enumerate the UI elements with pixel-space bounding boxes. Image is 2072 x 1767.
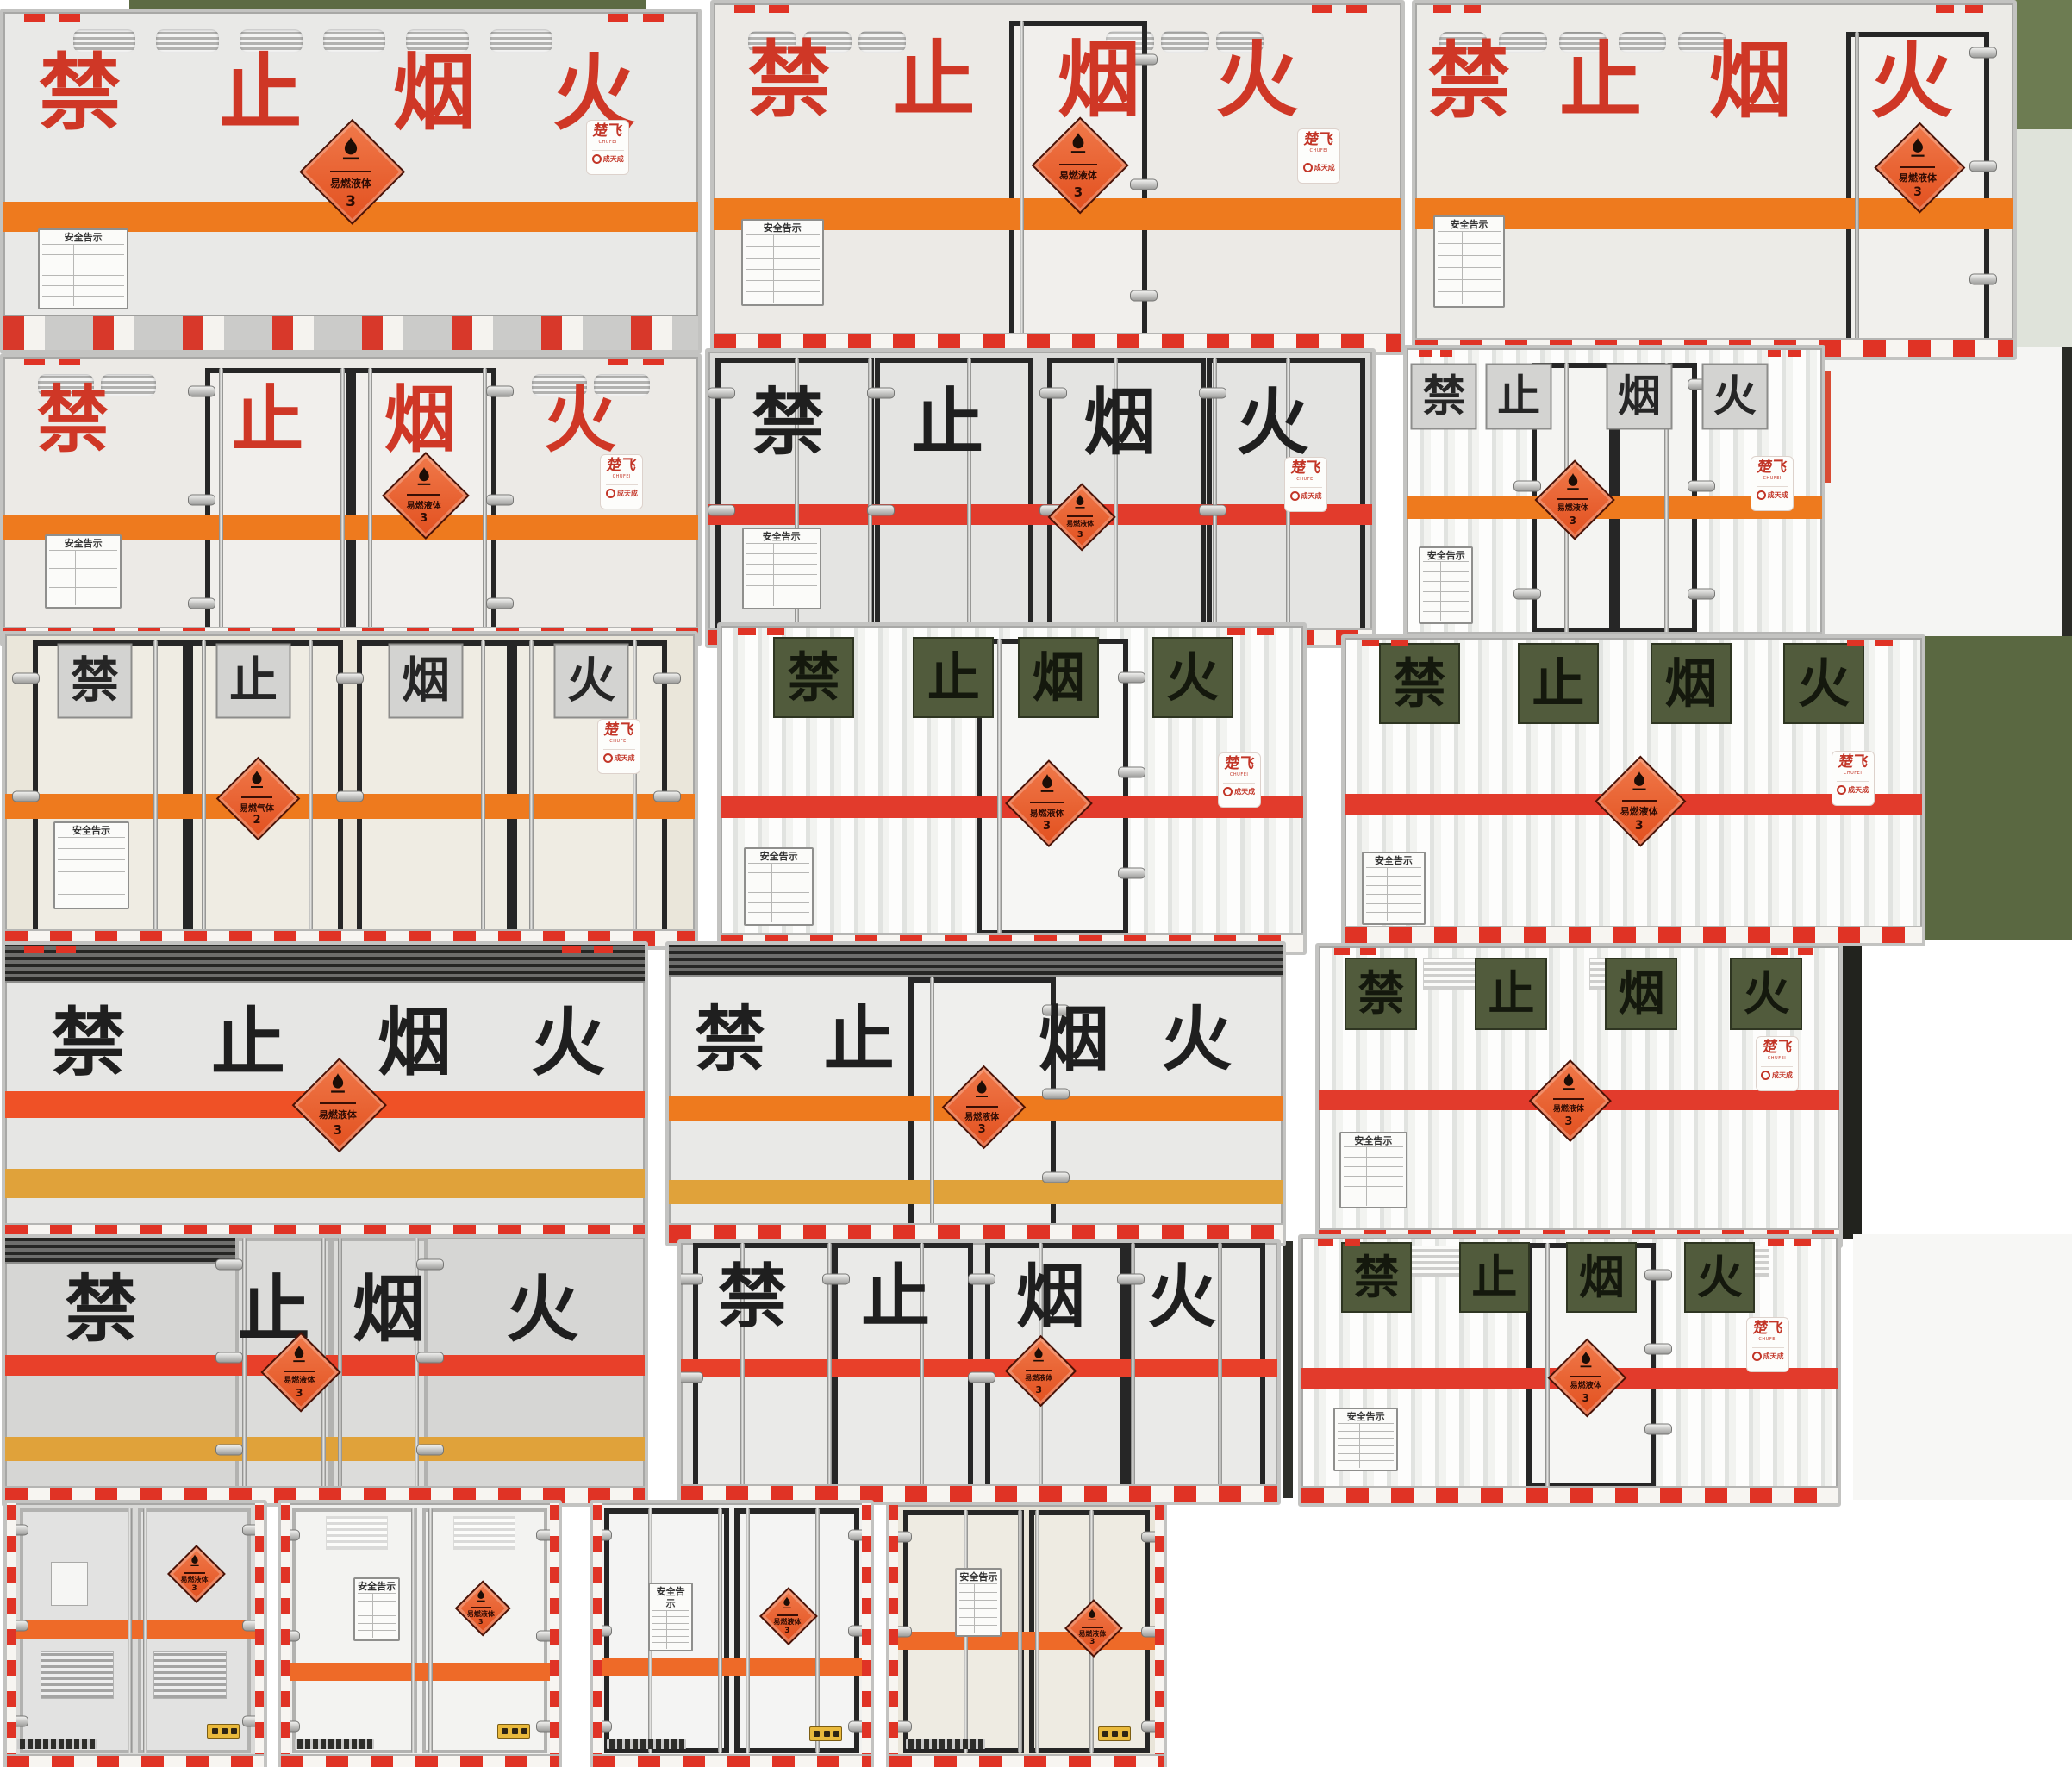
brand-logo-sticker: 楚飞CHUFEI成天成	[1832, 751, 1875, 806]
door-lock-rod	[815, 1508, 820, 1752]
diamond-line	[1622, 800, 1657, 802]
no-fireworks-text-char: 烟	[1018, 637, 1099, 718]
flame-icon	[1907, 137, 1929, 159]
reflective-top-mark	[608, 359, 628, 365]
safety-plate-row	[746, 269, 820, 280]
no-fireworks-text-char: 禁	[1341, 1242, 1412, 1313]
no-fireworks-text-char: 火	[531, 1006, 605, 1080]
safety-plate-row	[748, 902, 809, 913]
diamond-class-number: 3	[296, 1387, 303, 1399]
diamond-line	[1900, 166, 1935, 168]
brand-logo-sub: CHUFEI	[613, 474, 631, 479]
truck-10: 禁止烟火易燃液体3	[2, 941, 648, 1246]
diamond-class-number: 3	[191, 1584, 197, 1593]
safety-plate-row	[42, 275, 124, 285]
door-hinge	[416, 1352, 444, 1363]
brand-logo-sticker: 楚飞CHUFEI成天成	[1218, 752, 1261, 808]
reflective-top-mark	[59, 14, 79, 22]
safety-plate-row	[1438, 267, 1501, 279]
safety-plate-row	[746, 553, 817, 564]
brand-logo-bottom: 成天成	[1757, 486, 1788, 500]
truck-rear-collage: 禁止烟火易燃液体3安全告示楚飞CHUFEI成天成禁止烟火易燃液体3安全告示楚飞C…	[0, 0, 2072, 1767]
safety-plate-row	[1423, 581, 1469, 590]
safety-plate-row	[959, 1583, 997, 1592]
flame-icon	[474, 1589, 488, 1603]
manufacturer-strip	[607, 1739, 686, 1749]
safety-plate-title: 安全告示	[652, 1586, 689, 1610]
reflective-top-mark	[24, 14, 45, 22]
reflective-top-mark	[1360, 948, 1376, 955]
door-hinge	[1688, 481, 1715, 492]
safety-plate-row	[1438, 243, 1501, 255]
flame-icon	[1066, 132, 1090, 156]
hazard-diamond-placard: 易燃液体3	[1875, 123, 1961, 209]
door-hinge	[215, 1445, 243, 1456]
reflective-top-mark	[1847, 640, 1864, 646]
reflective-top-mark	[594, 946, 613, 953]
background-foliage	[129, 0, 646, 9]
diamond-class-number: 2	[253, 814, 260, 827]
door-lock-rod	[746, 1508, 750, 1752]
flame-icon	[290, 1345, 309, 1364]
truck-01: 禁止烟火易燃液体3安全告示楚飞CHUFEI成天成	[0, 9, 702, 353]
diamond-line	[241, 796, 273, 798]
reflective-top-mark	[1312, 5, 1332, 13]
door-hinge	[968, 1274, 995, 1285]
diamond-class-number: 3	[1089, 1638, 1095, 1646]
safety-plate-title: 安全告示	[358, 1581, 396, 1593]
no-fireworks-text-char: 火	[544, 384, 616, 456]
reflective-side-strip	[255, 1503, 264, 1767]
diamond-line	[1059, 164, 1096, 165]
brand-logo-sticker: 楚飞CHUFEI成天成	[600, 454, 643, 509]
diamond-line	[1026, 1370, 1052, 1371]
hazard-diamond-placard: 易燃气体2	[217, 757, 296, 836]
reflective-top-mark	[1362, 640, 1379, 646]
reflective-top-mark	[1798, 948, 1813, 955]
door-hinge	[822, 1274, 850, 1285]
safety-plate-row	[1438, 255, 1501, 267]
diamond-label: 易燃液体	[1570, 1379, 1601, 1390]
truck-09: 禁止烟火易燃液体3安全告示楚飞CHUFEI成天成	[1341, 634, 1925, 946]
safety-plate-row	[42, 296, 124, 306]
rear-reflective-strip	[281, 1754, 559, 1767]
no-fireworks-text-char: 火	[1215, 39, 1298, 122]
door-info-plate	[51, 1562, 89, 1606]
no-fireworks-text-char: 火	[1147, 1263, 1216, 1332]
reflective-top-mark	[1794, 1239, 1811, 1246]
no-fireworks-text-char: 禁	[1345, 958, 1417, 1030]
vent-slot	[156, 29, 219, 53]
brand-logo-brand: 成天成	[603, 154, 624, 164]
safety-plate-row	[746, 291, 820, 303]
safety-plate-row	[49, 578, 117, 587]
safety-plate-row	[58, 837, 125, 848]
safety-plate-row	[1338, 1431, 1394, 1439]
safety-plate-row	[746, 596, 817, 606]
brand-logo-bottom: 成天成	[1223, 783, 1255, 796]
safety-plate-row	[959, 1625, 997, 1633]
brand-logo-main: 楚飞	[1303, 133, 1334, 147]
flame-icon	[413, 466, 434, 488]
safety-notice-plate: 安全告示	[955, 1568, 1002, 1637]
safety-notice-plate: 安全告示	[1333, 1408, 1398, 1471]
hazard-diamond-placard: 易燃液体3	[293, 1058, 383, 1147]
door-hinge	[12, 791, 40, 802]
reflective-top-mark	[1334, 948, 1350, 955]
safety-plate-row	[1338, 1453, 1394, 1461]
safety-plate-row	[42, 244, 124, 254]
diamond-class-number: 3	[1582, 1392, 1588, 1404]
no-fireworks-text-char: 烟	[389, 644, 464, 719]
brand-logo-sticker: 楚飞CHUFEI成天成	[1297, 128, 1340, 184]
safety-plate-row	[1338, 1460, 1394, 1468]
door-hinge	[188, 495, 215, 506]
manufacturer-strip	[295, 1739, 374, 1749]
safety-notice-plate: 安全告示	[1339, 1132, 1407, 1209]
door-hinge	[1118, 767, 1145, 778]
safety-plate-row	[1338, 1445, 1394, 1453]
flame-icon	[1563, 472, 1582, 492]
reflective-side-strip	[862, 1503, 871, 1767]
reflective-top-mark	[734, 5, 755, 13]
diamond-line	[407, 494, 440, 496]
rear-reflective-strip	[1345, 926, 1922, 943]
safety-plate-row	[748, 912, 809, 922]
yellow-warning-label	[809, 1726, 842, 1741]
safety-plate-row	[1366, 876, 1421, 885]
safety-plate-title: 安全告示	[746, 531, 817, 543]
no-fireworks-text-char: 烟	[353, 1273, 425, 1346]
brand-logo-bottom: 成天成	[603, 749, 635, 763]
safety-plate-row	[1344, 1146, 1403, 1156]
door-lock-rod	[368, 368, 372, 634]
reflective-top-mark	[1875, 640, 1893, 646]
reflective-side-strip	[593, 1503, 602, 1767]
flame-icon	[1085, 1608, 1099, 1622]
safety-notice-plate: 安全告示	[38, 228, 128, 309]
reflective-top-mark	[1346, 5, 1367, 13]
background-foliage	[1283, 1241, 1293, 1498]
no-fireworks-text-char: 烟	[1566, 1242, 1637, 1313]
yellow-reflective-band	[5, 1169, 645, 1199]
brand-logo-circle-icon	[1290, 491, 1300, 501]
hazard-diamond-placard: 易燃液体3	[1032, 117, 1125, 210]
door-lock-rod	[428, 1508, 433, 1752]
door-lock-rod	[868, 358, 872, 634]
rear-reflective-strip	[1301, 1486, 1838, 1503]
door-hinge	[336, 672, 364, 684]
door-hinge	[653, 791, 681, 802]
safety-plate-row	[746, 543, 817, 553]
safety-plate-row	[1344, 1186, 1403, 1196]
safety-plate-row	[58, 894, 125, 905]
reflective-top-mark	[24, 946, 43, 953]
flame-icon	[247, 770, 267, 790]
diamond-line	[1082, 1627, 1103, 1628]
brand-logo-brand: 成天成	[1763, 1352, 1784, 1361]
reflective-top-mark	[1768, 1239, 1784, 1246]
hazard-diamond-placard: 易燃液体3	[1005, 1336, 1072, 1403]
diamond-line	[320, 1102, 356, 1104]
flame-icon	[1030, 1346, 1047, 1364]
diamond-line	[184, 1572, 205, 1574]
truck-04: 禁止烟火易燃液体3安全告示楚飞CHUFEI成天成	[0, 353, 702, 646]
door-lock-rod	[340, 368, 345, 634]
safety-plate-row	[746, 258, 820, 269]
safety-plate-row	[652, 1623, 689, 1629]
brand-logo-main: 楚飞	[1837, 755, 1868, 770]
hazard-diamond-placard: 易燃液体3	[261, 1333, 337, 1408]
no-fireworks-text-char: 止	[861, 1263, 930, 1332]
brand-logo-brand: 成天成	[1234, 787, 1255, 796]
reflective-side-strip	[7, 1503, 16, 1767]
brand-logo-sub: CHUFEI	[1296, 477, 1314, 482]
door-hinge	[486, 495, 514, 506]
safety-plate-row	[1344, 1176, 1403, 1185]
rear-reflective-strip	[593, 1754, 871, 1767]
no-fireworks-text-char: 禁	[37, 384, 109, 456]
safety-plate-row	[746, 564, 817, 574]
brand-logo-circle-icon	[603, 753, 613, 763]
reflective-top-mark	[1257, 628, 1274, 634]
yellow-warning-label	[1098, 1726, 1131, 1741]
no-fireworks-text-char: 禁	[695, 1005, 765, 1076]
safety-plate-row	[959, 1617, 997, 1626]
safety-notice-plate: 安全告示	[742, 528, 821, 609]
brand-logo-sticker: 楚飞CHUFEI成天成	[1751, 456, 1794, 511]
safety-plate-row	[652, 1636, 689, 1642]
door-hinge	[1117, 1274, 1145, 1285]
hazard-diamond-placard: 易燃液体3	[168, 1545, 222, 1599]
flame-icon	[326, 1072, 349, 1096]
brand-logo-sticker: 楚飞CHUFEI成天成	[1284, 457, 1327, 512]
brand-logo-circle-icon	[1761, 1071, 1770, 1080]
no-fireworks-text-char: 火	[1152, 637, 1233, 718]
door-hinge	[1513, 589, 1541, 600]
door-lock-rod	[219, 368, 223, 634]
vent-slot	[1161, 31, 1209, 52]
safety-plate-row	[1366, 912, 1421, 921]
no-fireworks-text-char: 禁	[718, 1263, 787, 1332]
hazard-diamond-placard: 易燃液体3	[760, 1588, 814, 1641]
flame-icon	[1072, 494, 1089, 510]
no-fireworks-text-char: 禁	[752, 386, 824, 459]
no-fireworks-text-char: 止	[1486, 363, 1552, 429]
door-lock-rod	[1035, 1510, 1039, 1753]
diamond-line	[284, 1371, 315, 1372]
safety-notice-plate: 安全告示	[648, 1583, 693, 1651]
door-hinge	[867, 504, 895, 515]
manufacturer-strip	[906, 1739, 985, 1749]
door-hinge	[653, 672, 681, 684]
no-fireworks-text-char: 烟	[1651, 643, 1732, 724]
vent-slot	[323, 29, 386, 53]
door-hinge	[1042, 1171, 1070, 1183]
diamond-label: 易燃液体	[1620, 804, 1658, 818]
safety-plate-row	[959, 1592, 997, 1601]
no-fireworks-text-char: 烟	[393, 52, 476, 134]
no-fireworks-text-char: 火	[506, 1273, 578, 1346]
brand-logo-sub: CHUFEI	[609, 739, 627, 744]
safety-plate-title: 安全告示	[748, 851, 809, 863]
reflective-top-mark	[1419, 350, 1431, 357]
diamond-label: 易燃液体	[284, 1374, 315, 1385]
no-fireworks-text-char: 止	[216, 644, 291, 719]
door-hinge	[1644, 1344, 1672, 1355]
door-lock-rod	[1020, 21, 1024, 341]
reflective-top-mark	[1936, 5, 1954, 13]
brand-logo-brand: 成天成	[617, 489, 638, 498]
safety-notice-plate: 安全告示	[1433, 215, 1505, 308]
door-lock-rod	[1018, 1510, 1022, 1753]
safety-plate-row	[1366, 885, 1421, 895]
truck-12: 禁止烟火易燃液体3安全告示楚飞CHUFEI成天成	[1315, 943, 1843, 1248]
door-lock-rod	[529, 640, 534, 933]
safety-plate-row	[49, 587, 117, 596]
diamond-label: 易燃气体	[240, 801, 274, 814]
safety-plate-row	[652, 1616, 689, 1622]
hazard-stripe	[889, 1632, 1164, 1650]
safety-plate-row	[746, 280, 820, 291]
safety-plate-row	[49, 559, 117, 568]
no-fireworks-text-char: 止	[231, 384, 303, 456]
safety-plate-row	[358, 1615, 396, 1623]
diamond-label: 易燃液体	[407, 498, 441, 511]
truck-02: 禁止烟火易燃液体3安全告示楚飞CHUFEI成天成	[710, 0, 1405, 355]
safety-plate-row	[58, 871, 125, 883]
truck-08: 禁止烟火易燃液体3安全告示楚飞CHUFEI成天成	[717, 622, 1307, 955]
truck-05: 禁止烟火易燃液体3安全告示楚飞CHUFEI成天成	[705, 348, 1376, 648]
brand-logo-circle-icon	[606, 489, 615, 498]
brand-logo-sub: CHUFEI	[1230, 772, 1248, 777]
door-lock-rod	[202, 640, 206, 933]
no-fireworks-text-char: 止	[211, 1006, 285, 1080]
no-fireworks-text-char: 烟	[1606, 363, 1672, 429]
hazard-diamond-placard: 易燃液体3	[1549, 1339, 1623, 1413]
reflective-top-mark	[24, 359, 45, 365]
safety-plate-title: 安全告示	[1338, 1411, 1394, 1423]
safety-notice-plate: 安全告示	[353, 1577, 401, 1641]
brand-logo-main: 楚飞	[1223, 757, 1254, 771]
diamond-label: 易燃液体	[773, 1617, 801, 1627]
safety-plate-row	[1344, 1196, 1403, 1205]
brand-logo-sticker: 楚飞CHUFEI成天成	[1756, 1036, 1799, 1091]
hazard-diamond-placard: 易燃液体3	[383, 453, 465, 535]
reflective-side-strip	[889, 1505, 898, 1767]
no-fireworks-text-char: 禁	[773, 637, 854, 718]
truck-14: 禁止烟火易燃液体3	[677, 1239, 1281, 1505]
safety-plate-row	[959, 1600, 997, 1608]
door-hinge	[215, 1352, 243, 1363]
reflective-top-mark	[643, 14, 664, 22]
brand-logo-brand: 成天成	[1848, 785, 1869, 795]
hazard-diamond-placard: 易燃液体3	[1530, 1059, 1607, 1137]
no-fireworks-text-char: 火	[1236, 386, 1308, 459]
safety-plate-row	[58, 859, 125, 871]
brand-logo-circle-icon	[1757, 490, 1766, 500]
safety-plate-title: 安全告示	[58, 825, 125, 837]
safety-plate-row	[748, 872, 809, 883]
safety-plate-row	[746, 246, 820, 257]
safety-plate-row	[58, 883, 125, 894]
no-fireworks-text-char: 止	[1559, 40, 1642, 122]
yellow-warning-label	[497, 1724, 530, 1739]
diamond-class-number: 3	[1077, 530, 1083, 540]
no-fireworks-text-char: 烟	[1016, 1263, 1085, 1332]
no-fireworks-text-char: 止	[1459, 1242, 1530, 1313]
hazard-diamond-placard: 易燃液体3	[1048, 484, 1112, 547]
brand-logo-bottom: 成天成	[1837, 781, 1869, 795]
brand-logo-bottom: 成天成	[1290, 487, 1322, 501]
no-fireworks-text-char: 火	[1701, 363, 1768, 429]
brand-logo-circle-icon	[1223, 787, 1233, 796]
brand-logo-circle-icon	[1752, 1352, 1762, 1361]
reflective-side-strip	[1155, 1505, 1164, 1767]
safety-plate-row	[1438, 279, 1501, 291]
brand-logo-circle-icon	[592, 154, 602, 164]
brand-logo-main: 楚飞	[1752, 1321, 1783, 1336]
flame-icon	[1628, 771, 1651, 793]
diamond-class-number: 3	[346, 193, 356, 210]
hazard-diamond-placard: 易燃液体3	[300, 120, 402, 222]
no-fireworks-text-char: 禁	[1411, 363, 1477, 429]
diamond-label: 易燃液体	[1078, 1629, 1106, 1639]
truck-16: 易燃液体3	[3, 1500, 267, 1767]
safety-notice-plate: 安全告示	[744, 847, 814, 926]
safety-plate-title: 安全告示	[42, 232, 124, 244]
safety-plate-row	[652, 1642, 689, 1648]
safety-plate-row	[358, 1608, 396, 1615]
brand-logo-sub: CHUFEI	[1310, 148, 1328, 153]
door-lock-rod	[153, 640, 158, 933]
safety-plate-title: 安全告示	[49, 538, 117, 550]
door-lock-rod	[128, 1508, 132, 1752]
flame-icon	[780, 1596, 794, 1610]
safety-plate-row	[1438, 291, 1501, 303]
diamond-label: 易燃液体	[1030, 806, 1064, 819]
louver-vent-band	[669, 945, 1283, 977]
diamond-class-number: 3	[1035, 1384, 1042, 1395]
brand-logo-sub: CHUFEI	[1763, 476, 1781, 481]
no-fireworks-text-char: 烟	[1709, 40, 1792, 122]
door-hinge	[1042, 1089, 1070, 1100]
truck-11: 禁止烟火易燃液体3	[665, 941, 1286, 1246]
diamond-label: 易燃液体	[1025, 1373, 1052, 1383]
door-hinge	[1644, 1423, 1672, 1434]
background-foliage	[2010, 0, 2072, 129]
door-hinge	[968, 1372, 995, 1383]
diamond-line	[1570, 1376, 1600, 1377]
brand-logo-sticker: 楚飞CHUFEI成天成	[597, 719, 640, 774]
safety-plate-row	[1423, 561, 1469, 571]
hazard-diamond-placard: 易燃液体3	[1006, 760, 1089, 843]
safety-plate-row	[1423, 611, 1469, 621]
brand-logo-main: 楚飞	[1757, 460, 1788, 475]
safety-plate-row	[1366, 867, 1421, 877]
reflective-top-mark	[643, 359, 664, 365]
diamond-class-number: 3	[1074, 184, 1083, 200]
brand-logo-main: 楚飞	[603, 723, 634, 738]
door-hinge	[336, 791, 364, 802]
no-fireworks-text-char: 烟	[1058, 39, 1140, 122]
door-lock-rod	[1855, 32, 1859, 343]
door-hinge	[188, 385, 215, 396]
hazard-diamond-placard: 易燃液体3	[1065, 1600, 1119, 1653]
safety-plate-row	[42, 265, 124, 275]
reflective-top-mark	[1391, 640, 1408, 646]
reflective-top-mark	[608, 14, 628, 22]
